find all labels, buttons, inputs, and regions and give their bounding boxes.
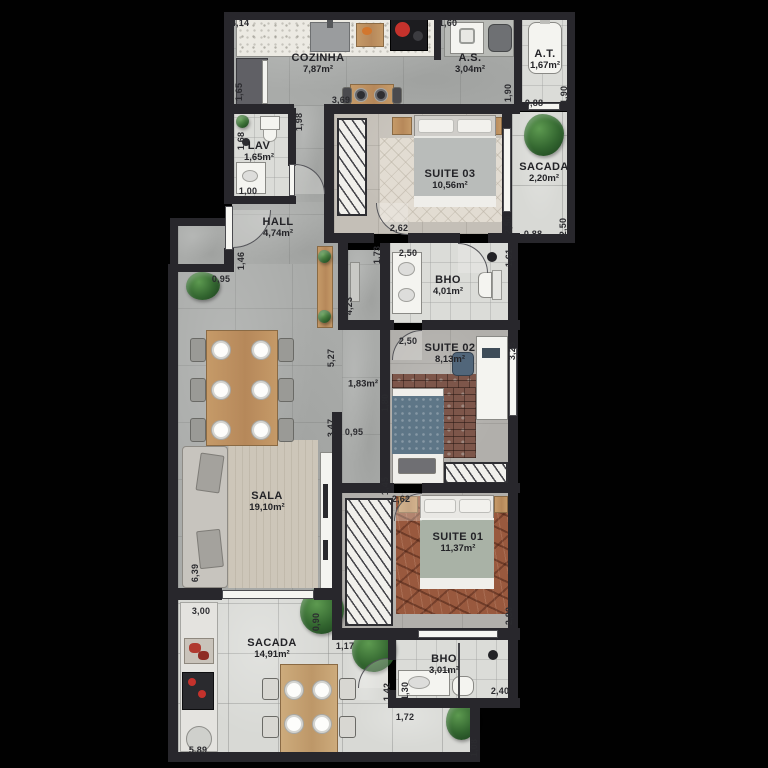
wall — [422, 320, 520, 330]
plate — [252, 341, 270, 359]
wall — [408, 233, 460, 243]
bho-sacada-basin — [408, 676, 430, 689]
lav-basin — [242, 170, 258, 182]
dining-chair — [190, 338, 206, 362]
room-name: SACADA — [519, 161, 568, 174]
dimension-label: 1,45 — [380, 477, 390, 495]
wall — [422, 483, 520, 493]
bho-suites-toilet — [478, 272, 492, 298]
food-icon — [362, 27, 372, 35]
plate — [375, 89, 387, 101]
burner-icon — [413, 31, 423, 41]
dimension-label: 2,62 — [392, 494, 410, 504]
room-name: SACADA — [247, 637, 296, 650]
sala-rug — [228, 440, 318, 588]
room-label-at: A.T.1,67m² — [530, 48, 560, 72]
dimension-label: 0,95 — [212, 274, 230, 284]
room-name: BHO — [429, 653, 459, 666]
room-label-suite01: SUITE 0111,37m² — [433, 531, 484, 555]
wall — [488, 233, 520, 243]
wall — [178, 588, 222, 600]
suite02-closet — [444, 462, 508, 484]
room-area: 19,10m² — [249, 503, 284, 514]
bho-sacada-shower-icon — [488, 650, 498, 660]
dimension-label: 3,47 — [326, 419, 336, 437]
dimension-label: 4,23 — [344, 297, 354, 315]
room-label-as: A.S.3,04m² — [455, 52, 485, 76]
grill-ember-icon — [188, 678, 196, 686]
bho-suites-basin — [398, 262, 415, 276]
window-suite01 — [418, 630, 498, 638]
suite02-brick-panel — [392, 374, 476, 388]
dimension-label: 1,42 — [382, 683, 392, 701]
dimension-label: 3,25 — [507, 342, 517, 360]
plate — [285, 681, 303, 699]
wall — [168, 264, 178, 760]
wall — [170, 264, 232, 272]
dimension-label: 2,50 — [503, 216, 513, 234]
dimension-label: 1,17 — [336, 641, 354, 651]
dimension-label: 6,39 — [190, 564, 200, 582]
room-name: SUITE 02 — [425, 342, 476, 355]
dimension-label: 1,61 — [504, 249, 514, 267]
plate — [252, 381, 270, 399]
suite01-pillow — [459, 499, 491, 513]
room-area: 14,91m² — [247, 650, 296, 661]
suite03-foot-throw — [414, 196, 496, 207]
dimension-label: 2,50 — [399, 336, 417, 346]
room-name: BHO — [433, 274, 463, 287]
dimension-label: 1,98 — [294, 113, 304, 131]
dimension-label: 2,50 — [399, 248, 417, 258]
plate — [355, 89, 367, 101]
room-area: 10,56m² — [425, 181, 476, 192]
wall — [324, 233, 374, 243]
suite03-closet — [337, 118, 367, 216]
room-name: SALA — [249, 490, 284, 503]
utility-tub — [488, 24, 512, 52]
room-name: SUITE 01 — [433, 531, 484, 544]
dimension-label: 1,08 — [469, 739, 479, 757]
wall — [224, 104, 294, 114]
plate — [313, 715, 331, 733]
room-area: 3,04m² — [455, 65, 485, 76]
plate — [212, 421, 230, 439]
suite01-pillow — [424, 499, 456, 513]
suite02-pillow — [398, 458, 436, 474]
suite02-duvet — [392, 396, 444, 454]
dining-chair — [190, 378, 206, 402]
entry-door — [225, 206, 233, 250]
dimension-label: 0,90 — [311, 613, 321, 631]
wall — [567, 12, 575, 243]
dining-chair — [278, 338, 294, 362]
bho-sacada-toilet — [452, 676, 474, 696]
dimension-label: 1,46 — [236, 252, 246, 270]
plate — [285, 715, 303, 733]
dimension-label: 2,80 — [504, 607, 514, 625]
room-area: 7,87m² — [292, 65, 345, 76]
wall — [338, 320, 394, 330]
room-label-suite02: SUITE 028,13m² — [425, 342, 476, 366]
room-area: 2,20m² — [519, 174, 568, 185]
room-label-sacada-inferior: SACADA14,91m² — [247, 637, 296, 661]
wall — [176, 218, 228, 226]
fridge-door — [262, 60, 268, 104]
dimension-label: 5,89 — [189, 745, 207, 755]
wall — [324, 104, 334, 243]
wall — [326, 104, 520, 114]
tv-icon — [323, 484, 328, 518]
plate — [252, 421, 270, 439]
wall — [514, 12, 522, 110]
dimension-label: 0,88 — [524, 229, 542, 239]
bho-suites-shower-icon — [487, 252, 497, 262]
room-name: COZINHA — [292, 52, 345, 65]
suite02-brick-panel — [442, 388, 476, 458]
tv-icon — [323, 540, 328, 560]
room-label-sacada-superior: SACADA2,20m² — [519, 161, 568, 185]
room-area: 3,01m² — [429, 666, 459, 677]
suite03-nightstand — [392, 117, 412, 135]
lav-door — [289, 164, 295, 196]
dimension-label: 4,14 — [231, 18, 249, 28]
room-area: 11,37m² — [433, 544, 484, 555]
outdoor-chair — [262, 716, 279, 738]
dimension-label: 5,27 — [326, 349, 336, 367]
suite03-pillow — [457, 119, 492, 133]
dining-chair — [190, 418, 206, 442]
floor-corridor — [342, 330, 382, 492]
grill-ember-icon — [198, 690, 206, 698]
washer-door-icon — [459, 28, 475, 44]
outdoor-chair — [339, 678, 356, 700]
sliding-door-sala-balcony — [222, 590, 314, 599]
suite03-pillow — [418, 119, 454, 133]
room-area: 4,74m² — [263, 229, 294, 240]
floor-entry — [178, 226, 226, 266]
dimension-label: 1,00 — [239, 186, 257, 196]
suite01-foot-throw — [420, 578, 494, 589]
wall — [168, 752, 480, 762]
bho-suites-basin — [398, 288, 415, 302]
room-label-bho-suites: BHO4,01m² — [433, 274, 463, 298]
bbq-meat-icon — [198, 651, 209, 660]
wall — [314, 588, 342, 600]
room-area: 1,83m² — [348, 380, 378, 391]
room-label-hall: HALL4,74m² — [263, 216, 294, 240]
dimension-label: 2,40 — [491, 686, 509, 696]
dimension-label: 1,90 — [559, 86, 569, 104]
sofa-cushion — [196, 529, 224, 569]
wall — [332, 412, 342, 640]
suite02-monitor-icon — [482, 348, 500, 358]
plate — [212, 381, 230, 399]
bho-suites-toilet-tank — [492, 270, 502, 300]
room-label-bho-sacada: BHO3,01m² — [429, 653, 459, 677]
room-name: A.S. — [455, 52, 485, 65]
plate — [212, 341, 230, 359]
plate — [313, 681, 331, 699]
room-label-cozinha: COZINHA7,87m² — [292, 52, 345, 76]
dimension-label: 3,00 — [192, 606, 210, 616]
outdoor-chair — [339, 716, 356, 738]
dimension-label: 1,30 — [400, 682, 410, 700]
dining-chair — [278, 418, 294, 442]
room-area: 4,01m² — [433, 287, 463, 298]
red-pot-icon — [395, 22, 410, 37]
suite01-nightstand — [494, 496, 508, 513]
dimension-label: 0,88 — [525, 98, 543, 108]
room-area: 1,65m² — [244, 153, 274, 164]
room-label-lav: LAV1,65m² — [244, 140, 274, 164]
wall — [224, 196, 296, 204]
dimension-label: 1,73 — [372, 246, 382, 264]
suite01-closet — [345, 498, 393, 626]
lav-toilet — [260, 116, 280, 130]
dimension-label: 1,68 — [236, 132, 246, 150]
room-label-suite03: SUITE 0310,56m² — [425, 168, 476, 192]
room-name: A.T. — [530, 48, 560, 61]
outdoor-chair — [262, 678, 279, 700]
dimension-label: 1,60 — [439, 18, 457, 28]
room-name: LAV — [244, 140, 274, 153]
dimension-label: 2,50 — [558, 218, 568, 236]
dimension-label: 2,62 — [390, 223, 408, 233]
room-label-sala: SALA19,10m² — [249, 490, 284, 514]
wall — [224, 12, 575, 20]
dimension-label: 1,65 — [234, 83, 244, 101]
wall — [388, 640, 396, 660]
dimension-label: 1,90 — [503, 84, 513, 102]
wall — [338, 243, 348, 330]
room-area: 8,13m² — [425, 355, 476, 366]
window-suite03-balcony — [503, 128, 511, 212]
room-name: HALL — [263, 216, 294, 229]
dimension-label: 3,69 — [332, 95, 350, 105]
kitchen-chair — [392, 87, 402, 104]
cutting-board — [356, 23, 384, 47]
dimension-label: 1,72 — [396, 712, 414, 722]
room-name: SUITE 03 — [425, 168, 476, 181]
dimension-label: 1,80 — [380, 394, 390, 412]
outdoor-table — [280, 664, 338, 756]
room-label-corredor: 1,83m² — [348, 380, 378, 391]
dining-chair — [278, 378, 294, 402]
floor-plan-canvas: COZINHA7,87m²A.S.3,04m²A.T.1,67m²LAV1,65… — [0, 0, 768, 768]
dimension-label: 0,95 — [345, 427, 363, 437]
wall — [224, 12, 234, 198]
room-area: 1,67m² — [530, 61, 560, 72]
